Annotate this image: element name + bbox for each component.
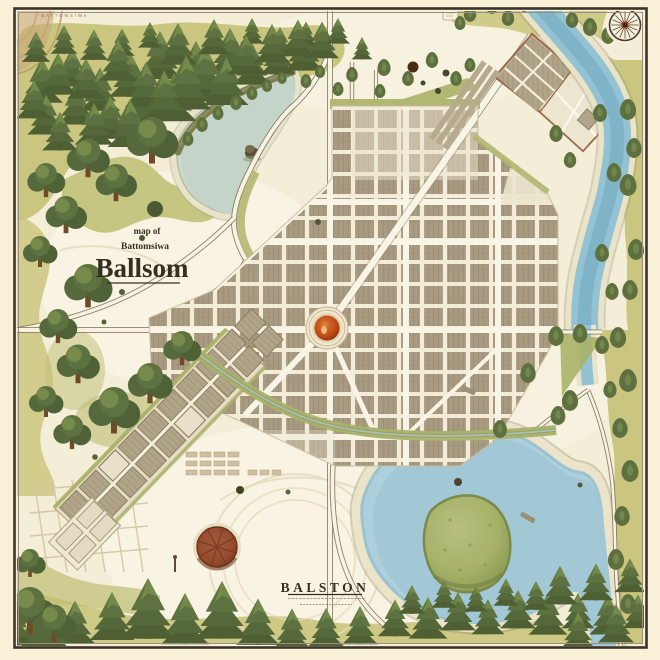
svg-text:· B A T T O M S I W A ·: · B A T T O M S I W A · (38, 13, 90, 18)
svg-text:BALSTON: BALSTON (281, 580, 370, 595)
svg-text:Ballsom: Ballsom (95, 253, 189, 283)
svg-text:Battomsiwa: Battomsiwa (121, 242, 169, 252)
svg-text:map of: map of (134, 226, 162, 236)
